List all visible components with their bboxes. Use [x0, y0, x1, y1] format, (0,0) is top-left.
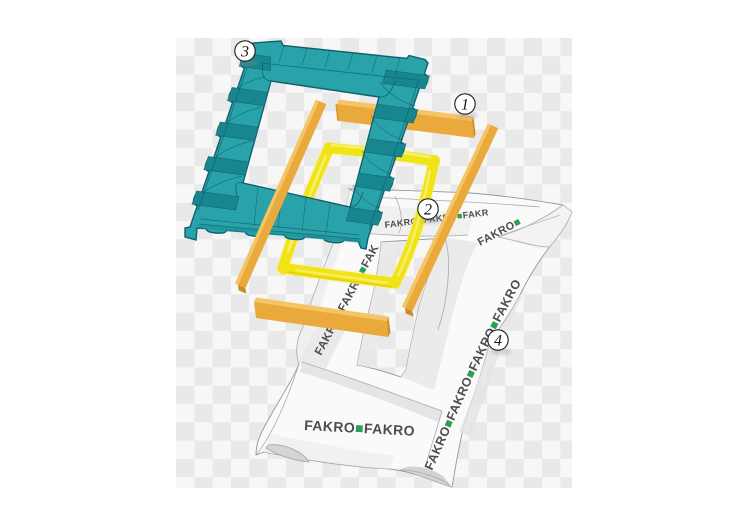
svg-text:2: 2 [424, 202, 432, 219]
svg-text:3: 3 [240, 44, 249, 61]
svg-text:1: 1 [461, 97, 469, 114]
svg-text:4: 4 [494, 333, 502, 350]
